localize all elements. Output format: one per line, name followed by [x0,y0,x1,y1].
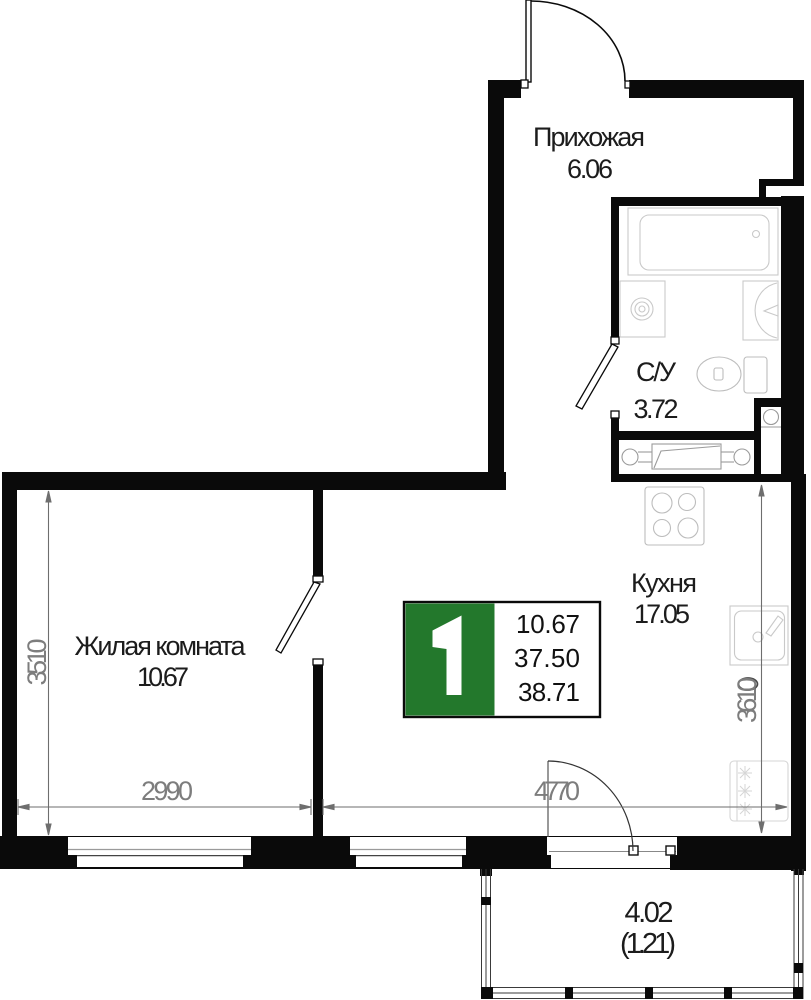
svg-text:(1.21): (1.21) [620,928,676,960]
svg-text:С/У: С/У [636,357,677,387]
svg-text:38.71: 38.71 [518,677,580,707]
svg-text:10.67: 10.67 [137,662,189,692]
svg-text:4770: 4770 [534,776,580,806]
svg-text:37.50: 37.50 [514,643,580,673]
svg-text:Прихожая: Прихожая [533,122,645,152]
svg-text:10.67: 10.67 [516,609,580,639]
svg-text:3.72: 3.72 [634,394,679,424]
svg-text:6.06: 6.06 [567,154,613,184]
svg-text:3510: 3510 [22,639,52,686]
svg-text:Жилая комната: Жилая комната [75,631,247,661]
svg-text:2990: 2990 [141,776,193,806]
svg-text:3610: 3610 [732,677,762,723]
svg-text:4.02: 4.02 [625,897,674,929]
svg-text:Кухня: Кухня [631,568,697,598]
svg-text:17.05: 17.05 [634,599,690,629]
